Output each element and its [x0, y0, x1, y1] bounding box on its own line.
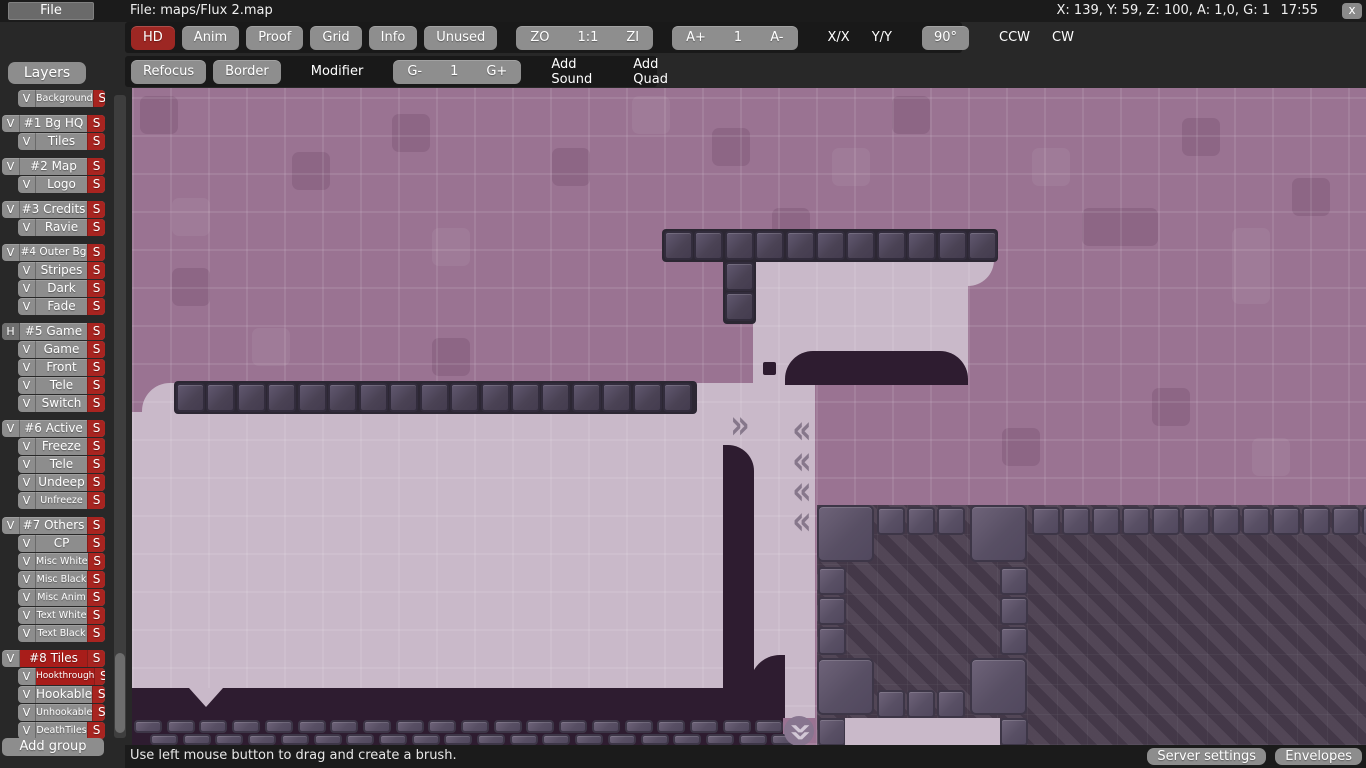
unhookable-tile — [633, 383, 662, 412]
bg-tile-patch — [140, 96, 178, 134]
visibility-toggle[interactable]: V — [18, 625, 36, 642]
hookable-tile — [248, 734, 276, 745]
hookable-tile — [346, 734, 374, 745]
hookable-tile — [706, 734, 734, 745]
hookable-tile — [494, 720, 522, 733]
zi-button[interactable]: ZI — [612, 30, 653, 45]
unhookable-tile — [786, 231, 815, 260]
hookable-tile — [1000, 567, 1028, 595]
layer-row-game[interactable]: VGameS — [18, 341, 105, 358]
hookable-tile — [1182, 507, 1210, 535]
layer-label[interactable]: #6 Active — [20, 420, 87, 437]
hookable-tile — [1362, 507, 1366, 535]
layer-details-button[interactable]: S — [87, 456, 105, 473]
bg-tile-patch — [1292, 178, 1330, 216]
layer-details-button[interactable]: S — [87, 158, 105, 175]
g-button[interactable]: G- — [393, 64, 436, 79]
layer-details-button[interactable]: S — [87, 517, 105, 534]
layer-label[interactable]: Misc Anim — [36, 589, 87, 606]
hookable-tile — [526, 720, 554, 733]
hookable-tile — [542, 734, 570, 745]
layer-row-hookable[interactable]: VHookableS — [18, 686, 105, 703]
layer-details-button[interactable]: S — [87, 438, 105, 455]
bg-tile-patch — [252, 328, 290, 366]
add-quad-button[interactable]: Add Quad — [622, 57, 679, 87]
hookable-tile — [937, 690, 965, 718]
hookable-tile — [818, 597, 846, 625]
layer-label[interactable]: #3 Credits — [20, 201, 87, 218]
hookable-tile — [281, 734, 309, 745]
layer-label[interactable]: Text Black — [36, 625, 87, 642]
layer-details-button[interactable]: S — [87, 323, 105, 340]
group-row-3-credits[interactable]: V#3 CreditsS — [2, 201, 105, 218]
visibility-toggle[interactable]: V — [18, 668, 36, 685]
envelopes-button[interactable]: Envelopes — [1275, 748, 1362, 765]
layer-details-button[interactable]: S — [87, 571, 105, 588]
hookable-tile — [412, 734, 440, 745]
layer-details-button[interactable]: S — [87, 298, 105, 315]
bg-tile-patch — [432, 228, 470, 266]
layer-row-deathtiles[interactable]: VDeathTilesS — [18, 722, 105, 739]
layer-label[interactable]: Switch — [36, 395, 87, 412]
unhookable-tile — [694, 231, 723, 260]
layer-label[interactable]: Unfreeze — [36, 492, 87, 509]
unhookable-tile — [267, 383, 296, 412]
layer-row-tele[interactable]: VTeleS — [18, 456, 105, 473]
unhookable-tile — [755, 231, 784, 260]
layer-details-button[interactable]: S — [94, 668, 105, 685]
visibility-toggle[interactable]: V — [2, 201, 20, 218]
layer-details-button[interactable]: S — [87, 133, 105, 150]
add-quad-group: Add Quad — [622, 60, 679, 84]
hookable-tile — [1122, 507, 1150, 535]
layer-label[interactable]: DeathTiles — [36, 722, 87, 739]
hookable-tile — [723, 720, 751, 733]
hookable-tile — [818, 567, 846, 595]
unhookable-tile — [877, 231, 906, 260]
hookable-tile — [907, 507, 935, 535]
layer-details-button[interactable]: S — [87, 722, 105, 739]
group-row-1-bg-hq[interactable]: V#1 Bg HQS — [2, 115, 105, 132]
visibility-toggle[interactable]: V — [18, 280, 36, 297]
layer-label[interactable]: #7 Others — [20, 517, 87, 534]
hookable-tile — [134, 720, 162, 733]
status-bar: Use left mouse button to drag and create… — [125, 745, 1366, 768]
cw-button[interactable]: CW — [1041, 30, 1085, 45]
layer-label[interactable]: Hookable — [36, 686, 92, 703]
unhookable-tile — [846, 231, 875, 260]
visibility-toggle[interactable]: H — [2, 323, 20, 340]
layer-details-button[interactable]: S — [87, 341, 105, 358]
unhookable-tile — [450, 383, 479, 412]
layer-label[interactable]: #5 Game — [20, 323, 87, 340]
close-icon[interactable]: x — [1342, 3, 1362, 19]
hookable-tile — [444, 734, 472, 745]
layer-row-stripes[interactable]: VStripesS — [18, 262, 105, 279]
layer-label[interactable]: Undeep — [36, 474, 87, 491]
hookable-tile — [167, 720, 195, 733]
clock: 17:55 — [1281, 3, 1318, 18]
layer-details-button[interactable]: S — [87, 607, 105, 624]
group-row-4-outer-bg[interactable]: V#4 Outer BgS — [2, 244, 105, 261]
dark-map-region — [785, 351, 968, 385]
hookable-tile — [907, 690, 935, 718]
visibility-toggle[interactable]: V — [2, 517, 20, 534]
layer-row-undeep[interactable]: VUndeepS — [18, 474, 105, 491]
visibility-toggle[interactable]: V — [2, 158, 20, 175]
unhookable-tile — [938, 231, 967, 260]
bg-tile-patch — [832, 148, 870, 186]
hookable-tile — [877, 690, 905, 718]
add-sound-group: Add Sound — [540, 60, 603, 84]
layer-label[interactable]: Fade — [36, 298, 87, 315]
layer-details-button[interactable]: S — [87, 474, 105, 491]
hookable-tile — [428, 720, 456, 733]
file-menu-button[interactable]: File — [8, 2, 94, 20]
layer-details-button[interactable]: S — [87, 176, 105, 193]
layer-details-button[interactable]: S — [87, 219, 105, 236]
unhookable-tile — [328, 383, 357, 412]
light-map-region — [968, 260, 994, 286]
unhookable-tile — [389, 383, 418, 412]
unhookable-tile — [725, 262, 754, 291]
layer-label[interactable]: Ravie — [36, 219, 87, 236]
hookable-tile — [232, 720, 260, 733]
visibility-toggle[interactable]: V — [2, 244, 20, 261]
layer-label[interactable]: #2 Map — [20, 158, 87, 175]
hookable-tile — [461, 720, 489, 733]
light-region-notch — [189, 688, 223, 707]
layer-label[interactable]: Tele — [36, 456, 87, 473]
toolbar-row-1: HDAnimProofGridInfoUnusedZO1:1ZIA+1A-X/X… — [125, 22, 962, 53]
layer-details-button[interactable]: S — [87, 377, 105, 394]
a-button[interactable]: A+ — [672, 30, 720, 45]
layer-label[interactable]: Tiles — [36, 133, 87, 150]
add-group-button[interactable]: Add group — [2, 738, 104, 756]
modifier-button[interactable]: Modifier — [300, 64, 375, 79]
visibility-toggle[interactable]: V — [18, 474, 36, 491]
unhookable-tile — [359, 383, 388, 412]
hookable-tile — [1152, 507, 1180, 535]
layer-row-text-black[interactable]: VText BlackS — [18, 625, 105, 642]
90-button[interactable]: 90° — [922, 26, 969, 50]
hookable-tile — [1212, 507, 1240, 535]
hookable-tile — [575, 734, 603, 745]
layer-label[interactable]: #1 Bg HQ — [20, 115, 87, 132]
unhookable-tile — [237, 383, 266, 412]
refocus-button[interactable]: Refocus — [131, 60, 206, 84]
layer-label[interactable]: #8 Tiles — [20, 650, 87, 667]
layers-scrollbar[interactable] — [114, 95, 126, 738]
layer-row-background[interactable]: VBackgroundS — [18, 90, 105, 107]
dark-map-region — [723, 445, 754, 689]
bg-tile-patch — [632, 96, 670, 134]
speedup-arrow-icon: « — [784, 716, 816, 745]
unhookable-tile — [907, 231, 936, 260]
bg-tile-patch — [892, 96, 930, 134]
layer-row-switch[interactable]: VSwitchS — [18, 395, 105, 412]
visibility-toggle[interactable]: V — [18, 686, 36, 703]
hookable-tile — [1302, 507, 1330, 535]
light-map-region — [132, 412, 815, 689]
layer-label[interactable]: CP — [36, 535, 87, 552]
layer-row-misc-black[interactable]: VMisc BlackS — [18, 571, 105, 588]
layer-details-button[interactable]: S — [92, 686, 105, 703]
visibility-toggle[interactable]: V — [18, 377, 36, 394]
layer-row-text-white[interactable]: VText WhiteS — [18, 607, 105, 624]
layer-details-button[interactable]: S — [87, 201, 105, 218]
server-settings-button[interactable]: Server settings — [1147, 748, 1266, 765]
dark-map-region — [132, 688, 785, 718]
proof-button[interactable]: Proof — [246, 26, 303, 50]
hookable-tile — [183, 734, 211, 745]
layer-label[interactable]: Stripes — [36, 262, 87, 279]
layer-details-button[interactable]: S — [87, 492, 105, 509]
speedup-arrow-icon: « — [786, 506, 818, 538]
visibility-toggle[interactable]: V — [18, 571, 36, 588]
hookable-tile — [1000, 718, 1028, 745]
bg-tile-patch — [1252, 438, 1290, 476]
hookable-tile — [641, 734, 669, 745]
layer-label[interactable]: Front — [36, 359, 87, 376]
visibility-toggle[interactable]: V — [18, 359, 36, 376]
a-1-a-group: A+1A- — [672, 26, 797, 50]
visibility-toggle[interactable]: V — [18, 341, 36, 358]
visibility-toggle[interactable]: V — [18, 219, 36, 236]
visibility-toggle[interactable]: V — [18, 535, 36, 552]
unhookable-tile — [816, 231, 845, 260]
bg-tile-patch — [1082, 208, 1158, 246]
scrollbar-thumb[interactable] — [115, 653, 125, 733]
layer-row-unfreeze[interactable]: VUnfreezeS — [18, 492, 105, 509]
map-file-title: File: maps/Flux 2.map — [130, 3, 273, 18]
group-row-6-active[interactable]: V#6 ActiveS — [2, 420, 105, 437]
hookable-tile — [673, 734, 701, 745]
toolbar-row-2: RefocusBorderModifierG-1G+Add SoundAdd Q… — [125, 56, 657, 87]
light-map-region — [142, 383, 176, 413]
layer-row-front[interactable]: VFrontS — [18, 359, 105, 376]
layer-label[interactable]: Freeze — [36, 438, 87, 455]
unhookable-tile — [968, 231, 997, 260]
1-button[interactable]: 1 — [436, 64, 472, 79]
zo-button[interactable]: ZO — [516, 30, 563, 45]
layer-label[interactable]: Misc White — [36, 553, 88, 570]
ccw-button[interactable]: CCW — [988, 30, 1041, 45]
hookable-tile-large — [817, 658, 874, 715]
hookable-tile — [396, 720, 424, 733]
visibility-toggle[interactable]: V — [18, 262, 36, 279]
unhookable-tile — [663, 383, 692, 412]
layer-details-button[interactable]: S — [93, 90, 105, 107]
hookable-tile — [559, 720, 587, 733]
hd-button[interactable]: HD — [131, 26, 175, 50]
grid-button[interactable]: Grid — [310, 26, 361, 50]
group-row-7-others[interactable]: V#7 OthersS — [2, 517, 105, 534]
layer-label[interactable]: Unhookable — [36, 704, 92, 721]
layer-row-freeze[interactable]: VFreezeS — [18, 438, 105, 455]
visibility-toggle[interactable]: V — [2, 420, 20, 437]
visibility-toggle[interactable]: V — [18, 298, 36, 315]
layer-row-unhookable[interactable]: VUnhookableS — [18, 704, 105, 721]
hookable-tile-large — [817, 505, 874, 562]
hookable-tile-large — [970, 505, 1027, 562]
visibility-toggle[interactable]: V — [18, 553, 36, 570]
layer-details-button[interactable]: S — [87, 262, 105, 279]
unhookable-tile — [511, 383, 540, 412]
unhookable-tile — [725, 231, 754, 260]
unused-button[interactable]: Unused — [424, 26, 497, 50]
layer-label[interactable]: Misc Black — [36, 571, 87, 588]
bg-tile-patch — [1182, 118, 1220, 156]
layer-row-misc-anim[interactable]: VMisc AnimS — [18, 589, 105, 606]
bg-tile-patch — [1152, 388, 1190, 426]
hookable-tile — [1242, 507, 1270, 535]
visibility-toggle[interactable]: V — [18, 704, 36, 721]
unhookable-tile — [725, 292, 754, 321]
hookable-tile — [215, 734, 243, 745]
unhookable-tile — [602, 383, 631, 412]
light-map-region — [845, 718, 1000, 745]
bg-tile-patch — [1232, 228, 1270, 304]
hookable-tile — [1000, 597, 1028, 625]
hookable-tile — [150, 734, 178, 745]
x-x-button[interactable]: X/X — [817, 30, 861, 45]
layer-row-dark[interactable]: VDarkS — [18, 280, 105, 297]
modifier-group: Modifier — [300, 60, 375, 84]
layer-details-button[interactable]: S — [87, 625, 105, 642]
layer-details-button[interactable]: S — [92, 704, 105, 721]
unhookable-tile — [481, 383, 510, 412]
layer-row-hookthrough[interactable]: VHookthroughS — [18, 668, 105, 685]
layer-label[interactable]: #4 Outer Bg — [20, 244, 87, 261]
visibility-toggle[interactable]: V — [2, 650, 20, 667]
hookable-tile — [314, 734, 342, 745]
bg-tile-patch — [712, 128, 750, 166]
hookable-tile — [379, 734, 407, 745]
layer-label[interactable]: Logo — [36, 176, 87, 193]
layer-label[interactable]: Game — [36, 341, 87, 358]
group-row-5-game[interactable]: H#5 GameS — [2, 323, 105, 340]
layer-row-misc-white[interactable]: VMisc WhiteS — [18, 553, 105, 570]
hookable-tile — [477, 734, 505, 745]
hookable-tile — [937, 507, 965, 535]
group-row-2-map[interactable]: V#2 MapS — [2, 158, 105, 175]
hookable-tile — [739, 734, 767, 745]
layer-label[interactable]: Text White — [36, 607, 87, 624]
1-button[interactable]: 1 — [720, 30, 756, 45]
visibility-toggle[interactable]: V — [18, 133, 36, 150]
layer-details-button[interactable]: S — [87, 359, 105, 376]
layer-details-button[interactable]: S — [87, 535, 105, 552]
bg-tile-patch — [1002, 428, 1040, 466]
layer-label[interactable]: Dark — [36, 280, 87, 297]
visibility-toggle[interactable]: V — [18, 589, 36, 606]
unhookable-tile — [664, 231, 693, 260]
layer-label[interactable]: Tele — [36, 377, 87, 394]
g-button[interactable]: G+ — [472, 64, 521, 79]
speedup-arrow-icon: » — [724, 410, 756, 442]
hookable-tile — [363, 720, 391, 733]
hookable-tile — [330, 720, 358, 733]
layer-details-button[interactable]: S — [87, 280, 105, 297]
visibility-toggle[interactable]: V — [18, 438, 36, 455]
layer-details-button[interactable]: S — [87, 244, 105, 261]
bg-tile-patch — [432, 338, 470, 376]
hookable-tile — [199, 720, 227, 733]
y-y-button[interactable]: Y/Y — [861, 30, 903, 45]
layer-details-button[interactable]: S — [87, 395, 105, 412]
bg-tile-patch — [392, 114, 430, 152]
add-sound-button[interactable]: Add Sound — [540, 57, 603, 87]
hookable-tile — [265, 720, 293, 733]
bg-tile-patch — [172, 198, 210, 236]
info-button[interactable]: Info — [369, 26, 418, 50]
layer-details-button[interactable]: S — [88, 553, 105, 570]
unhookable-tile — [206, 383, 235, 412]
ccw-cw-group: CCWCW — [988, 26, 1085, 50]
layer-details-button[interactable]: S — [87, 650, 105, 667]
layer-details-button[interactable]: S — [87, 589, 105, 606]
dark-map-region — [763, 362, 776, 375]
hookable-tile — [1000, 627, 1028, 655]
layer-row-cp[interactable]: VCPS — [18, 535, 105, 552]
layer-row-fade[interactable]: VFadeS — [18, 298, 105, 315]
visibility-toggle[interactable]: V — [18, 176, 36, 193]
hookable-tile — [608, 734, 636, 745]
layer-details-button[interactable]: S — [87, 115, 105, 132]
visibility-toggle[interactable]: V — [18, 492, 36, 509]
layer-row-tiles[interactable]: VTilesS — [18, 133, 105, 150]
hookable-tile — [592, 720, 620, 733]
map-canvas[interactable]: »««««« — [132, 88, 1366, 745]
visibility-toggle[interactable]: V — [2, 115, 20, 132]
light-map-region — [785, 688, 815, 718]
layer-row-ravie[interactable]: VRavieS — [18, 219, 105, 236]
unhookable-tile — [541, 383, 570, 412]
g-1-g-group: G-1G+ — [393, 60, 521, 84]
visibility-toggle[interactable]: V — [18, 607, 36, 624]
hookable-tile — [625, 720, 653, 733]
status-hint: Use left mouse button to drag and create… — [130, 748, 457, 763]
bg-tile-patch — [552, 148, 590, 186]
layer-label[interactable]: Hookthrough — [36, 668, 94, 685]
unhookable-tile — [572, 383, 601, 412]
anim-button[interactable]: Anim — [182, 26, 239, 50]
layer-row-tele[interactable]: VTeleS — [18, 377, 105, 394]
hookable-tile — [1062, 507, 1090, 535]
layer-row-logo[interactable]: VLogoS — [18, 176, 105, 193]
visibility-toggle[interactable]: V — [18, 456, 36, 473]
1-1-button[interactable]: 1:1 — [563, 30, 612, 45]
layer-details-button[interactable]: S — [87, 420, 105, 437]
cursor-coordinates: X: 139, Y: 59, Z: 100, A: 1,0, G: 1 — [1057, 3, 1271, 18]
group-row-8-tiles[interactable]: V#8 TilesS — [2, 650, 105, 667]
visibility-toggle[interactable]: V — [18, 395, 36, 412]
hookable-tile — [690, 720, 718, 733]
hookable-tile — [877, 507, 905, 535]
bg-tile-patch — [1032, 148, 1070, 186]
unhookable-tile — [298, 383, 327, 412]
bg-tile-patch — [172, 268, 210, 306]
unhookable-tile — [420, 383, 449, 412]
layers-panel-header: Layers — [8, 62, 86, 84]
layer-label[interactable]: Background — [36, 90, 93, 107]
visibility-toggle[interactable]: V — [18, 90, 36, 107]
border-button[interactable]: Border — [213, 60, 281, 84]
a-button[interactable]: A- — [756, 30, 797, 45]
unhookable-tile — [176, 383, 205, 412]
visibility-toggle[interactable]: V — [18, 722, 36, 739]
